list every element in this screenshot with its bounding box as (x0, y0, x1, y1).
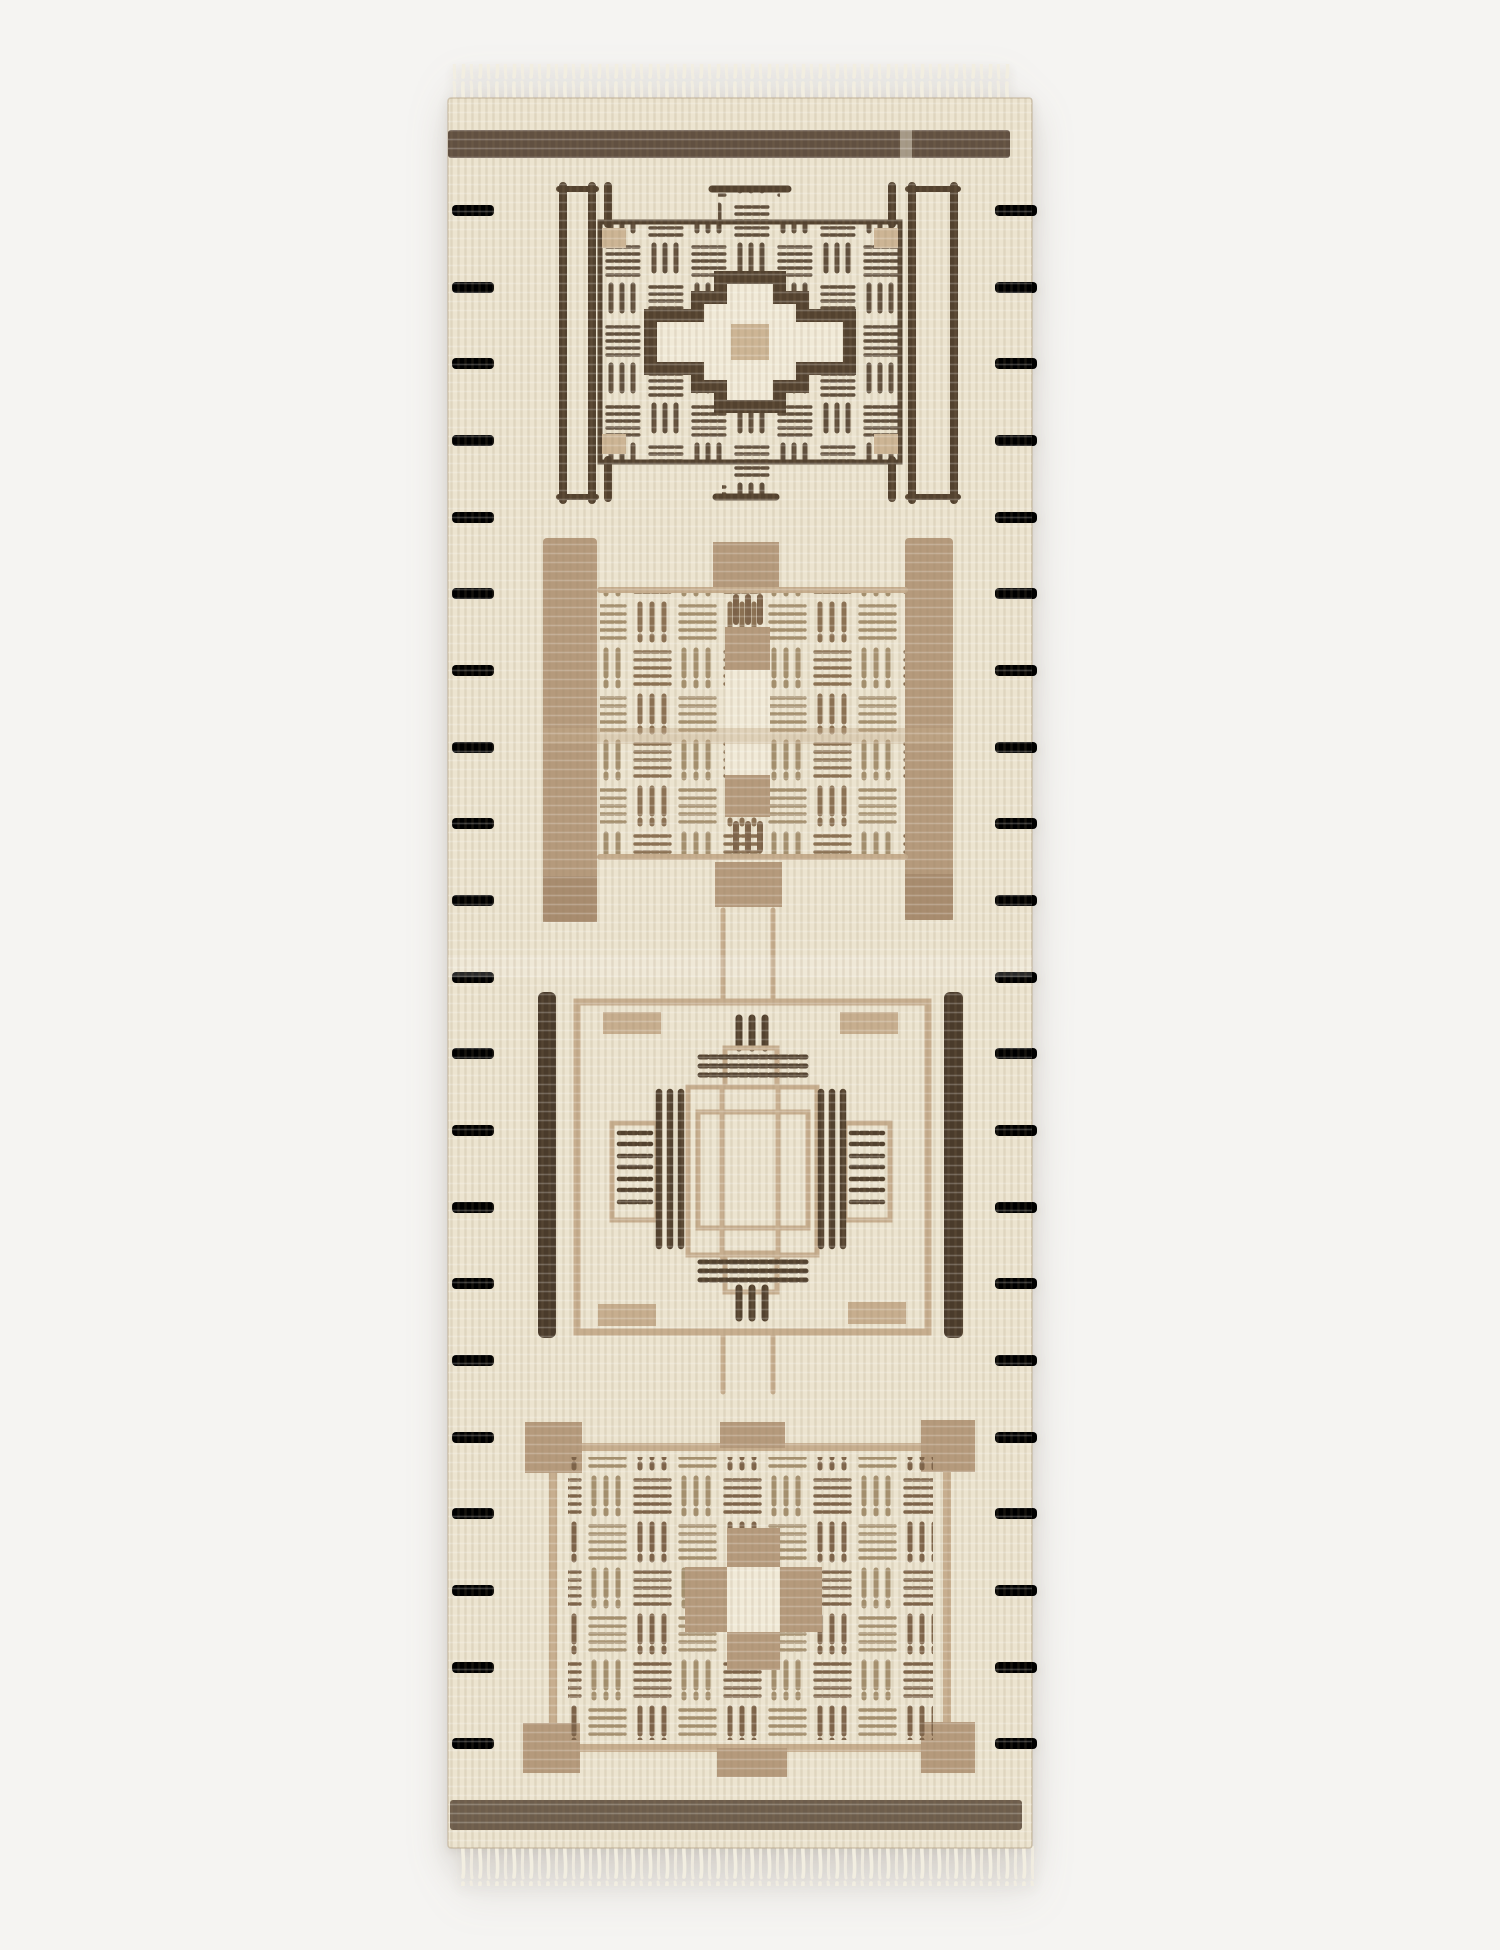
rug: Hand-knotted cream wool runner rug, phot… (448, 64, 1037, 1886)
weave-texture (448, 98, 1032, 1848)
photo-canvas: Hand-knotted cream wool runner rug, phot… (0, 0, 1500, 1950)
fringe-bottom (456, 1846, 1034, 1886)
rug-photo: Hand-knotted cream wool runner rug, phot… (0, 0, 1500, 1950)
fringe-top (452, 64, 1012, 102)
